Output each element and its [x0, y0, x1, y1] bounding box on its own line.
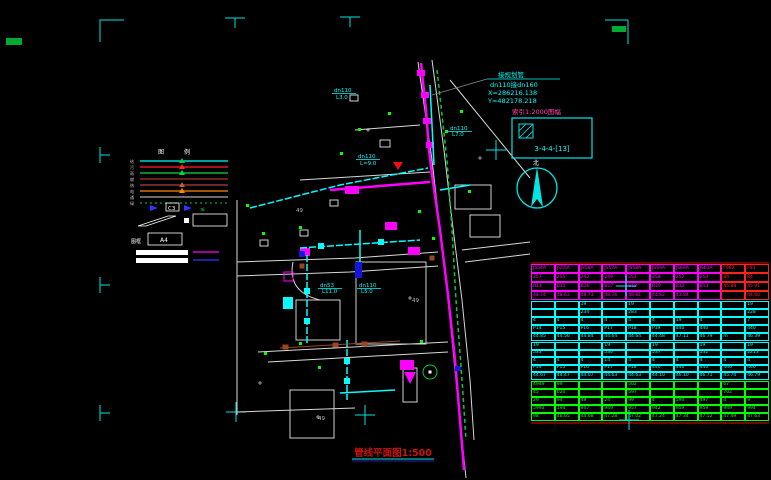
table-cell: m	[721, 333, 745, 341]
table-cell: 283	[626, 309, 650, 317]
table-cell	[721, 309, 745, 317]
table-cell: B14	[531, 282, 555, 291]
table-cell: 47.11	[674, 333, 698, 341]
table-cell: 14	[602, 357, 626, 365]
map-label: L7.0	[452, 132, 464, 138]
table-cell: JS59A	[650, 264, 674, 273]
table-cell: 4	[650, 317, 674, 325]
table-cell: 29	[531, 397, 555, 405]
table-cell	[698, 309, 722, 317]
brown-utility	[280, 256, 434, 349]
table-cell	[650, 389, 674, 397]
table-cell: 46.39	[745, 333, 769, 341]
map-label: dn110	[334, 88, 352, 94]
table-cell: 47.52	[698, 413, 722, 421]
cyan-section-1: 1919192342832284444441947P14P15P16P17P18…	[531, 301, 769, 341]
map-label: L11.0	[322, 289, 338, 295]
legend-label: 污	[130, 164, 134, 170]
svg-text:A4: A4	[160, 237, 168, 244]
table-cell: P15	[555, 365, 579, 373]
table-cell: 4	[555, 357, 579, 365]
table-cell: 19	[650, 342, 674, 350]
table-cell: 4	[579, 357, 603, 365]
table-cell: 44.64	[626, 333, 650, 341]
table-cell	[721, 325, 745, 333]
table-cell: JS60A	[674, 264, 698, 273]
svg-text:接规划管: 接规划管	[498, 70, 525, 79]
legend-marker	[179, 164, 185, 169]
table-cell: 94	[555, 397, 579, 405]
magenta-section: JS54AJS55AJS56AJS57AJS58AJS59AJS60AJS61A…	[531, 264, 769, 300]
svg-text:北: 北	[533, 159, 539, 167]
legend-marker	[179, 182, 185, 187]
table-cell: P14	[531, 325, 555, 333]
table-cell: 43.84	[674, 291, 698, 300]
cyan-pipelines	[250, 85, 470, 400]
table-cell: 4	[602, 317, 626, 325]
table-cell: 19	[745, 301, 769, 309]
blue-arrow-icon	[184, 205, 192, 211]
map-label: 49	[318, 416, 325, 422]
legend-label: 绿	[130, 200, 134, 206]
table-cell: 959	[674, 405, 698, 413]
legend-label: 电	[130, 188, 134, 194]
table-cell	[602, 301, 626, 309]
table-cell	[579, 389, 603, 397]
table-cell: P16	[579, 365, 603, 373]
table-cell: 4	[745, 357, 769, 365]
table-cell: P17	[602, 365, 626, 373]
table-cell: JS55A	[555, 264, 579, 273]
table-cell	[674, 350, 698, 358]
map-label: dn110	[359, 283, 377, 289]
green-mark-topleft	[6, 38, 22, 45]
table-cell: 47.24	[650, 413, 674, 421]
table-cell: 4	[650, 397, 674, 405]
table-cell	[602, 381, 626, 389]
table-cell: 597	[626, 389, 650, 397]
table-cell: 440	[650, 365, 674, 373]
table-cell: 44.63	[626, 372, 650, 380]
legend-label: 雨	[130, 171, 134, 176]
table-cell: 502	[626, 381, 650, 389]
table-cell: 46.10	[674, 372, 698, 380]
map-label: 49	[412, 298, 419, 304]
table-cell: 48.73	[579, 291, 603, 300]
table-cell	[674, 301, 698, 309]
table-cell	[579, 381, 603, 389]
table-cell	[650, 309, 674, 317]
table-cell: 234	[579, 309, 603, 317]
survey-points	[258, 128, 482, 419]
table-cell: 228	[745, 309, 769, 317]
pipe-data-table: JS54AJS55AJS56AJS57AJS58AJS59AJS60AJS61A…	[531, 262, 769, 424]
table-cell: 19	[602, 342, 626, 350]
table-cell	[698, 301, 722, 309]
table-cell: 44.60	[745, 291, 769, 300]
table-cell: 7	[745, 317, 769, 325]
table-cell: 440	[674, 365, 698, 373]
cyan-section-2: 1919191919533530537532221344414444444P14…	[531, 342, 769, 380]
svg-text:Y=482178.218: Y=482178.218	[487, 97, 537, 105]
table-cell	[555, 350, 579, 358]
table-cell: JS61A	[698, 264, 722, 273]
table-cell	[531, 309, 555, 317]
table-cell: 949	[721, 405, 745, 413]
cad-viewport[interactable]: JS54AJS55AJS56AJS57AJS58AJS59AJS60AJS61A…	[0, 0, 771, 480]
table-cell: 4	[531, 317, 555, 325]
connection-note: 接规划管 dn110接dn160 X=286216.138 Y=482178.2…	[487, 70, 560, 105]
svg-text:X=286216.138: X=286216.138	[488, 89, 537, 97]
table-cell: 252	[674, 273, 698, 282]
table-cell: 942	[650, 405, 674, 413]
scale-bar	[136, 258, 188, 263]
table-cell: 533	[531, 350, 555, 358]
table-cell: 45	[531, 389, 555, 397]
legend-marker	[179, 170, 185, 175]
legend-label: 燃	[130, 176, 134, 182]
scale-bar	[136, 250, 188, 255]
table-cell: F91	[745, 264, 769, 273]
table-cell: 194	[555, 405, 579, 413]
index-box: 索引1:2000图幅 3-4-4-[13]	[512, 107, 592, 158]
svg-text:图: 图	[158, 149, 164, 156]
table-cell: 258	[650, 273, 674, 282]
svg-text:索引1:2000图幅: 索引1:2000图幅	[512, 107, 561, 116]
table-cell: 99	[626, 397, 650, 405]
table-cell: 44.07	[579, 372, 603, 380]
table-cell: JS54A	[531, 264, 555, 273]
table-cell: 254	[698, 273, 722, 282]
north-arrow: 北	[517, 159, 557, 208]
table-cell	[555, 342, 579, 350]
table-cell: F982	[721, 264, 745, 273]
table-cell: P18	[626, 365, 650, 373]
table-cell: 45.74	[721, 372, 745, 380]
table-cell: 48.81	[626, 291, 650, 300]
magenta-water-main	[330, 63, 464, 470]
table-cell	[745, 381, 769, 389]
legend-marker	[179, 188, 185, 193]
table-cell	[531, 301, 555, 309]
map-label: dn110	[450, 126, 468, 132]
table-cell: 44.84	[579, 333, 603, 341]
table-cell: 99	[555, 381, 579, 389]
table-cell	[555, 301, 579, 309]
table-cell: 4949	[531, 381, 555, 389]
svg-text:3-4-4-[13]: 3-4-4-[13]	[534, 145, 570, 153]
table-cell: 19	[698, 342, 722, 350]
svg-text:C3: C3	[168, 206, 176, 212]
table-cell: 020	[555, 389, 579, 397]
map-label: 49	[296, 208, 303, 214]
roads	[237, 60, 530, 478]
table-cell: 19	[531, 342, 555, 350]
table-cell: 47.49	[721, 413, 745, 421]
table-cell: 497	[698, 397, 722, 405]
table-cell: 44.10	[650, 372, 674, 380]
slope-symbol	[138, 216, 176, 226]
magenta-fittings	[284, 70, 434, 384]
table-cell: B12	[674, 282, 698, 291]
table-cell	[721, 342, 745, 350]
table-cell: 44.48	[650, 333, 674, 341]
table-cell	[626, 350, 650, 358]
table-cell: 251	[626, 273, 650, 282]
table-cell: 4	[721, 397, 745, 405]
table-cell: JS56A	[579, 264, 603, 273]
table-cell: P15	[555, 325, 579, 333]
table-cell	[650, 301, 674, 309]
table-cell	[721, 350, 745, 358]
svg-text:管线平面图1:500: 管线平面图1:500	[354, 447, 432, 459]
table-cell	[602, 309, 626, 317]
table-cell	[650, 381, 674, 389]
table-cell: B13	[698, 282, 722, 291]
green-mark-topright	[612, 26, 626, 32]
map-label: L5.0	[361, 289, 373, 295]
table-cell: 5993	[531, 405, 555, 413]
table-cell: 4	[579, 317, 603, 325]
legend-label: 通	[130, 194, 134, 200]
drawing-title: 管线平面图1:500	[352, 447, 434, 461]
table-cell: 537	[650, 350, 674, 358]
table-cell	[602, 389, 626, 397]
table-cell	[674, 381, 698, 389]
table-cell: 44.82	[650, 291, 674, 300]
table-cell	[674, 342, 698, 350]
table-cell: 440	[721, 365, 745, 373]
table-cell: 84	[721, 273, 745, 282]
table-cell: B15	[555, 282, 579, 291]
table-cell: JS58A	[626, 264, 650, 273]
table-cell: 4	[531, 357, 555, 365]
table-cell: 98	[531, 413, 555, 421]
table-cell	[579, 342, 603, 350]
table-cell: 67	[721, 381, 745, 389]
table-cell	[698, 389, 722, 397]
table-cell: 47.02	[626, 413, 650, 421]
table-cell: 994	[745, 405, 769, 413]
table-cell: 255	[555, 273, 579, 282]
table-cell	[674, 389, 698, 397]
table-cell	[674, 309, 698, 317]
table-cell	[555, 309, 579, 317]
table-cell	[579, 350, 603, 358]
table-cell: 47.34	[674, 413, 698, 421]
table-cell: 959	[698, 405, 722, 413]
table-cell: 46.71	[698, 372, 722, 380]
table-cell: 46.79	[745, 372, 769, 380]
table-cell: 84	[745, 273, 769, 282]
red-flow-arrow	[393, 162, 403, 170]
table-cell	[745, 389, 769, 397]
table-cell: P17	[602, 325, 626, 333]
table-cell: 48.63	[555, 291, 579, 300]
table-cell: 440	[745, 325, 769, 333]
map-label: L=9.0	[360, 161, 377, 167]
svg-text:≤: ≤	[200, 206, 205, 213]
table-cell: 947	[579, 405, 603, 413]
leader-line	[432, 79, 487, 95]
vegetation-symbols	[246, 110, 471, 369]
table-cell: 4	[626, 357, 650, 365]
table-cell: P19	[650, 325, 674, 333]
legend-marker	[179, 158, 185, 163]
table-cell: B19	[650, 282, 674, 291]
table-cell: 44.85	[531, 333, 555, 341]
table-cell: 49	[579, 397, 603, 405]
table-cell	[698, 291, 722, 300]
table-cell: B16	[579, 282, 603, 291]
table-cell: 440	[674, 325, 698, 333]
legend-label: 热	[130, 182, 134, 188]
table-cell: 4	[674, 357, 698, 365]
table-cell: 530	[602, 350, 626, 358]
table-cell: 44.56	[555, 333, 579, 341]
table-cell: 19	[674, 317, 698, 325]
table-cell: 4	[721, 357, 745, 365]
table-cell: 48.76	[602, 291, 626, 300]
table-cell: P16	[579, 325, 603, 333]
svg-text:例: 例	[184, 148, 190, 156]
table-cell: 19	[745, 342, 769, 350]
cyan-fittings	[283, 239, 384, 384]
table-cell: 44.67	[531, 372, 555, 380]
table-cell: 48.74	[531, 291, 555, 300]
table-cell: 4	[698, 317, 722, 325]
table-cell: 44.47	[555, 372, 579, 380]
table-cell: 47.63	[745, 413, 769, 421]
table-cell: 249	[602, 273, 626, 282]
table-cell	[721, 317, 745, 325]
table-cell: 532	[698, 350, 722, 358]
table-cell: 2213	[745, 350, 769, 358]
green-line	[437, 70, 466, 440]
table-cell: 48.65	[555, 413, 579, 421]
table-cell: 9	[745, 397, 769, 405]
table-cell: 4	[698, 357, 722, 365]
legend: 图 例 给污雨燃热电通绿 C3 ≤ 图框 A4	[130, 148, 228, 263]
table-cell	[698, 381, 722, 389]
svg-text:图框: 图框	[131, 238, 141, 245]
table-cell: 44.64	[602, 333, 626, 341]
table-cell: P14	[531, 365, 555, 373]
table-cell: 44.63	[602, 372, 626, 380]
table-cell: 242	[579, 273, 603, 282]
table-cell: 257	[531, 273, 555, 282]
table-cell: 47.28	[602, 413, 626, 421]
table-cell	[721, 301, 745, 309]
table-cell: 45.88	[721, 282, 745, 291]
table-cell: 4	[626, 317, 650, 325]
map-label: L3.0	[336, 95, 348, 101]
green-section: 4949995026745020597702299449249945904974…	[531, 381, 769, 421]
svg-text:dn110接dn160: dn110接dn160	[490, 80, 538, 89]
table-cell: B17	[602, 282, 626, 291]
manhole-circle	[423, 365, 437, 379]
table-cell: 19	[579, 301, 603, 309]
table-cell: 45.91	[745, 282, 769, 291]
map-label: dn110	[358, 154, 376, 160]
table-cell: JS57A	[602, 264, 626, 273]
table-cell	[626, 342, 650, 350]
table-cell: 19	[626, 301, 650, 309]
map-labels: dn110L3.0dn110L=9.0dn53L11.0dn110L5.0dn1…	[296, 88, 472, 422]
table-cell: 24	[602, 397, 626, 405]
table-cell: P18	[626, 325, 650, 333]
table-cell: 440	[698, 365, 722, 373]
table-cell: 440	[745, 365, 769, 373]
map-label: dn53	[320, 283, 334, 289]
blue-arrow-icon	[150, 205, 158, 211]
table-cell: 46.79	[698, 333, 722, 341]
buildings	[260, 95, 500, 438]
table-cell: 44.68	[579, 413, 603, 421]
legend-label: 给	[130, 158, 134, 164]
table-cell: 4	[555, 317, 579, 325]
table-cell: 949	[602, 405, 626, 413]
table-cell: 590	[674, 397, 698, 405]
table-cell: 440	[698, 325, 722, 333]
table-cell: 4	[650, 357, 674, 365]
table-cell	[721, 291, 745, 300]
table-cell: 702	[721, 389, 745, 397]
table-cell: 957	[626, 405, 650, 413]
blue-blocks	[299, 251, 461, 371]
table-cell: B18	[626, 282, 650, 291]
